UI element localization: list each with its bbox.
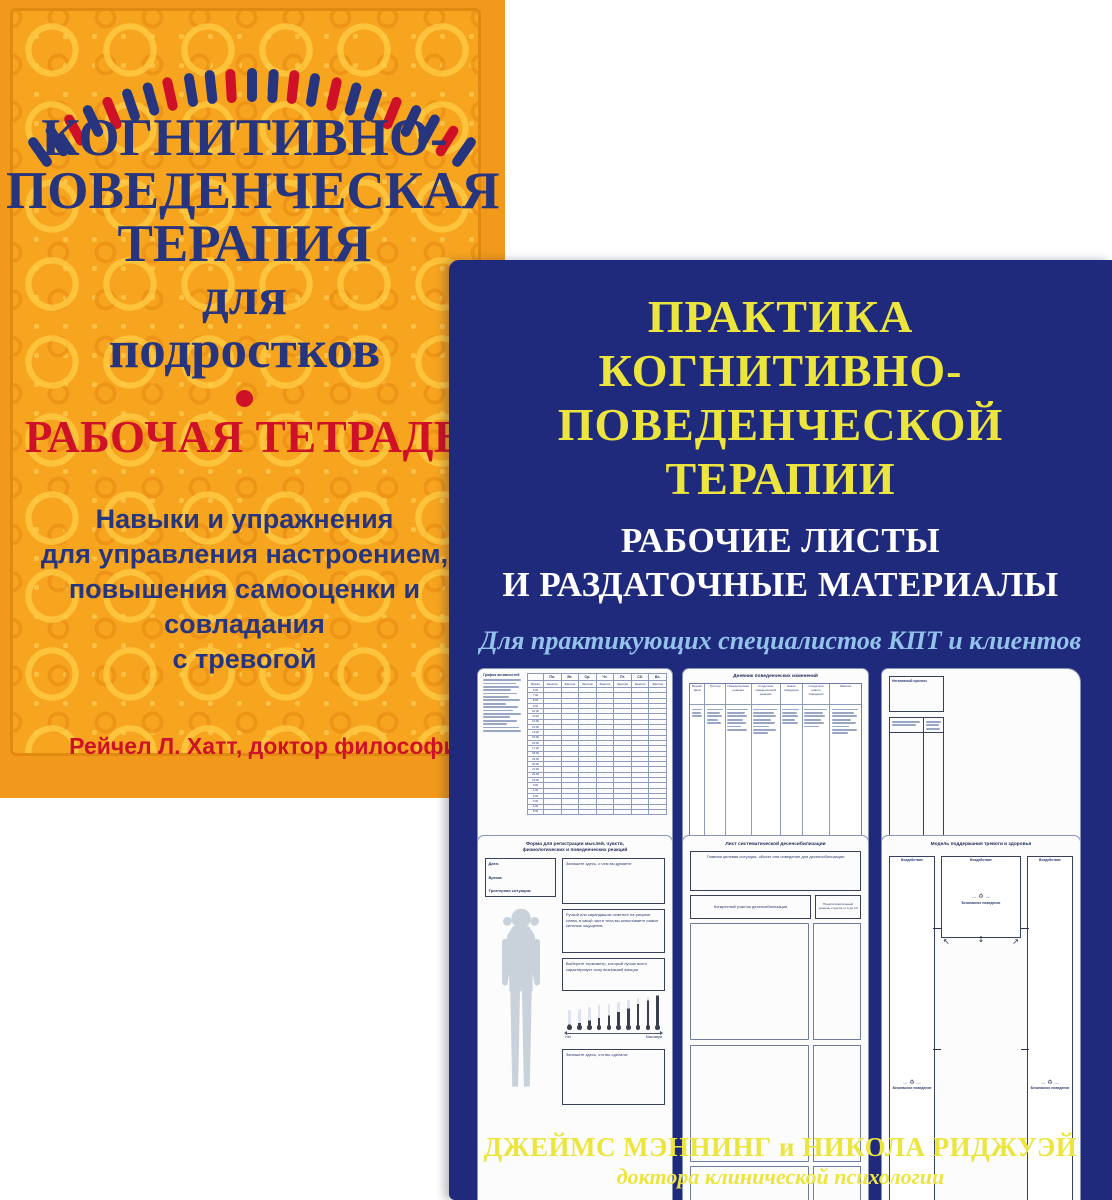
day-header: Вс. xyxy=(649,674,667,681)
text-placeholder-line xyxy=(483,727,519,729)
text-placeholder-line xyxy=(727,722,746,724)
field-label: Триггерная ситуация: xyxy=(489,888,553,893)
thermometer-bulb xyxy=(577,1025,582,1030)
stress-column-header: Предположительный уровень стресса от 0 д… xyxy=(815,895,861,919)
text-placeholder-line xyxy=(782,715,798,717)
text-placeholder-line xyxy=(753,726,769,728)
entry-subheader: Занятие xyxy=(649,681,667,688)
title-line: ПОВЕДЕНЧЕСКАЯ xyxy=(6,165,483,218)
thermometer-tube xyxy=(598,1005,601,1026)
schedule-cell: · xyxy=(614,809,632,814)
thermometer-icon xyxy=(636,998,641,1029)
title-line: ТЕРАПИИ xyxy=(449,452,1112,506)
diary-entry xyxy=(690,705,704,721)
subtitle-line: Навыки и упражнения xyxy=(6,502,483,537)
orange-cover-text: КОГНИТИВНО- ПОВЕДЕНЧЕСКАЯ ТЕРАПИЯ для по… xyxy=(6,0,483,760)
thoughts-box: Запишите здесь, о чем вы думаете: xyxy=(562,858,665,904)
box-label: Воздействие xyxy=(1028,857,1072,864)
diary-entry xyxy=(803,705,829,731)
entry-subheader: Занятие xyxy=(614,681,632,688)
arrow-up-left-icon: ↖ xyxy=(943,938,950,946)
text-placeholder-line xyxy=(782,722,798,724)
body-sensations-box: Ручкой или карандашом отметьте на рисунк… xyxy=(562,909,665,953)
text-placeholder-line xyxy=(926,728,940,730)
activity-notes xyxy=(483,679,523,732)
box-label: Безопасное поведение xyxy=(1028,1086,1072,1093)
thermometer-icon xyxy=(597,1005,602,1030)
text-placeholder-line xyxy=(832,709,858,711)
text-placeholder-line xyxy=(707,709,723,711)
thermometer-bulb xyxy=(616,1025,621,1030)
thought-record-left: Дата: Время: Триггерная ситуация: xyxy=(485,858,556,1105)
box-label: Безопасное поведение xyxy=(890,1086,934,1093)
day-header: Чт. xyxy=(596,674,614,681)
text-placeholder-line xyxy=(727,729,747,731)
diary-column-header: Триггер xyxy=(705,684,725,705)
text-placeholder-line xyxy=(892,724,917,726)
text-placeholder-line xyxy=(727,712,745,714)
text-placeholder-line xyxy=(832,712,855,714)
subtitle-line: И РАЗДАТОЧНЫЕ МАТЕРИАЛЫ xyxy=(449,563,1112,607)
scale-min-label: Нет xyxy=(565,1035,571,1039)
subtitle-line: РАБОЧИЕ ЛИСТЫ xyxy=(449,519,1112,563)
thermometer-icon xyxy=(655,995,660,1030)
desensitization-row xyxy=(690,923,861,1040)
text-placeholder-line xyxy=(483,713,521,715)
model-box: Воздействие ♻ Безопасное поведение xyxy=(941,856,1021,938)
prediction-col1-header xyxy=(890,718,924,733)
time-cell: 5:00 xyxy=(528,809,544,814)
connector-line xyxy=(1021,928,1029,929)
book-subtitle: Навыки и упражнения для управления настр… xyxy=(6,502,483,677)
text-placeholder-line xyxy=(483,730,521,732)
text-placeholder-line xyxy=(483,716,510,718)
title-line: для xyxy=(6,271,483,324)
activity-heading: График активностей xyxy=(483,673,523,677)
schedule-cell: · xyxy=(561,809,579,814)
thermometer-tube xyxy=(617,1002,620,1027)
thermometer-instruction-box: Выберите термометр, который лучше всего … xyxy=(562,958,665,991)
book-title: ПРАКТИКА КОГНИТИВНО- ПОВЕДЕНЧЕСКОЙ ТЕРАП… xyxy=(449,290,1112,506)
diary-entry xyxy=(705,705,725,728)
text-placeholder-line xyxy=(926,724,939,726)
text-placeholder-line xyxy=(804,726,819,728)
day-header: Сб. xyxy=(631,674,649,681)
thermometer-scale: Нет Максимум xyxy=(562,996,665,1044)
diary-column-header: Следствия нового поведения xyxy=(803,684,829,705)
text-placeholder-line xyxy=(832,732,848,734)
title-line: ТЕРАПИЯ xyxy=(6,218,483,271)
schedule-cell: · xyxy=(579,809,597,814)
diary-entry xyxy=(830,705,861,738)
text-placeholder-line xyxy=(483,706,518,708)
thermometer-tube xyxy=(608,1004,611,1027)
step-column-header: Конкретный участок десенсибилизации xyxy=(690,895,811,919)
text-placeholder-line xyxy=(483,683,516,685)
thermometer-tube xyxy=(647,997,650,1027)
thermometer-bulb xyxy=(597,1025,602,1030)
thermometer-icon xyxy=(577,1009,582,1030)
text-placeholder-line xyxy=(753,719,771,721)
box-label: Воздействие xyxy=(942,857,1020,864)
thermometer-bulb xyxy=(636,1025,641,1030)
text-placeholder-line xyxy=(483,723,507,725)
text-placeholder-line xyxy=(692,715,702,717)
schedule-cell: · xyxy=(631,809,649,814)
text-placeholder-line xyxy=(804,719,820,721)
blue-cover-text: ПРАКТИКА КОГНИТИВНО- ПОВЕДЕНЧЕСКОЙ ТЕРАП… xyxy=(449,260,1112,656)
thermometer-bulb xyxy=(587,1025,592,1030)
title-line: подростков xyxy=(6,324,483,377)
text-placeholder-line xyxy=(707,715,722,717)
text-placeholder-line xyxy=(483,710,513,712)
title-line: ПРАКТИКА xyxy=(449,290,1112,344)
text-placeholder-line xyxy=(727,709,748,711)
connector-line xyxy=(933,1049,941,1050)
book-title: КОГНИТИВНО- ПОВЕДЕНЧЕСКАЯ ТЕРАПИЯ для по… xyxy=(6,112,483,377)
audience-tagline: Для практикующих специалистов КПТ и клие… xyxy=(449,626,1112,656)
book-subtitle: РАБОЧИЕ ЛИСТЫ И РАЗДАТОЧНЫЕ МАТЕРИАЛЫ xyxy=(449,519,1112,607)
arrow-up-right-icon: ↗ xyxy=(1012,938,1019,946)
thermometer-bulb xyxy=(626,1025,631,1030)
day-header: Пн. xyxy=(544,674,562,681)
text-placeholder-line xyxy=(727,715,746,717)
text-placeholder-line xyxy=(707,712,721,714)
schedule-grid: Пн.Вт.Ср.Чт.Пт.Сб.Вс.ВремяЗанятиеЗанятие… xyxy=(527,673,667,815)
text-placeholder-line xyxy=(804,709,826,711)
text-placeholder-line xyxy=(832,722,856,724)
thermometer-icon xyxy=(567,1010,572,1030)
text-placeholder-line xyxy=(753,722,775,724)
text-placeholder-line xyxy=(692,712,701,714)
entry-subheader: Занятие xyxy=(544,681,562,688)
diary-column-header: Новое поведение xyxy=(781,684,802,705)
title-line: ПОВЕДЕНЧЕСКОЙ xyxy=(449,398,1112,452)
entry-subheader: Занятие xyxy=(596,681,614,688)
text-placeholder-line xyxy=(832,715,857,717)
thermometer-icon xyxy=(587,1007,592,1030)
text-placeholder-line xyxy=(483,703,506,705)
field-label: Время: xyxy=(489,875,553,880)
thermometer-icon xyxy=(607,1004,612,1030)
text-placeholder-line xyxy=(483,686,519,688)
target-situation-box: Главная целевая ситуация, объект или пов… xyxy=(690,851,861,891)
thermometer-bulb xyxy=(567,1025,572,1030)
series-label: РАБОЧАЯ ТЕТРАДЬ xyxy=(6,414,483,460)
text-placeholder-line xyxy=(926,721,941,723)
authors-degree: доктора клинической психологии xyxy=(449,1164,1112,1190)
entry-subheader: Занятие xyxy=(631,681,649,688)
title-line: физиологических и поведенческих реакций xyxy=(485,848,665,854)
diary-column-header: Заметки xyxy=(830,684,861,705)
diary-entry xyxy=(726,705,751,734)
thought-record-title: Форма для регистрации мыслей, чувств, фи… xyxy=(485,842,665,854)
two-book-covers: КОГНИТИВНО- ПОВЕДЕНЧЕСКАЯ ТЕРАПИЯ для по… xyxy=(0,0,1112,1200)
time-column-header: Время xyxy=(528,681,544,688)
prediction-col2-header xyxy=(924,718,943,733)
anxiety-model-title: Модель поддержания тревоги и здоровья xyxy=(888,842,1074,848)
text-placeholder-line xyxy=(483,693,517,695)
book-cover-teens-cbt-workbook: КОГНИТИВНО- ПОВЕДЕНЧЕСКАЯ ТЕРАПИЯ для по… xyxy=(0,0,505,798)
thermometer-tube xyxy=(588,1007,591,1026)
day-header: Пт. xyxy=(614,674,632,681)
schedule-cell: · xyxy=(649,809,667,814)
entry-subheader: Занятие xyxy=(561,681,579,688)
text-placeholder-line xyxy=(832,726,850,728)
context-fields-box: Дата: Время: Триггерная ситуация: xyxy=(485,858,556,897)
schedule-cell: · xyxy=(544,809,562,814)
desensitization-title: Лист систематической десенсибилизации xyxy=(690,842,861,848)
thermometer-bulb xyxy=(607,1025,612,1030)
text-placeholder-line xyxy=(832,719,851,721)
prediction-box-label: Негативный прогноз xyxy=(889,676,944,712)
thermometer-tube xyxy=(637,998,640,1026)
text-placeholder-line xyxy=(753,712,774,714)
text-placeholder-line xyxy=(707,722,721,724)
red-dot-ornament xyxy=(236,390,253,407)
text-placeholder-line xyxy=(753,729,776,731)
step-cell xyxy=(690,923,809,1040)
thermometers xyxy=(562,996,665,1030)
authors-line: ДЖЕЙМС МЭННИНГ и НИКОЛА РИДЖУЭЙ xyxy=(449,1132,1112,1163)
thermometer-tube xyxy=(568,1010,571,1026)
scale-max-label: Максимум xyxy=(646,1035,662,1039)
text-placeholder-line xyxy=(804,712,823,714)
text-placeholder-line xyxy=(727,719,742,721)
text-placeholder-line xyxy=(753,715,776,717)
thermometer-icon xyxy=(626,1000,631,1030)
stress-cell xyxy=(813,923,861,1040)
text-placeholder-line xyxy=(727,726,741,728)
field-label: Дата: xyxy=(489,861,553,866)
text-placeholder-line xyxy=(804,722,824,724)
connector-line xyxy=(1021,1049,1029,1050)
thermometer-bulb xyxy=(646,1025,651,1030)
thermometer-tube xyxy=(627,1000,630,1026)
diary-entry xyxy=(781,705,802,728)
scale-arrow-line xyxy=(566,1033,661,1034)
schedule-cell: · xyxy=(596,809,614,814)
box-label: Безопасное поведение xyxy=(942,900,1020,907)
day-header: Вт. xyxy=(561,674,579,681)
subtitle-line: с тревогой xyxy=(6,642,483,677)
arrow-up-icon: ↕ xyxy=(978,936,985,944)
diary-title: Дневник поведенческих изменений xyxy=(689,674,862,680)
text-placeholder-line xyxy=(753,732,768,734)
text-placeholder-line xyxy=(483,699,520,701)
title-line: КОГНИТИВНО- xyxy=(449,344,1112,398)
subtitle-line: повышения самооценки и совладания xyxy=(6,572,483,642)
diary-column-header: Время/ Дата xyxy=(690,684,704,705)
child-silhouette xyxy=(486,905,556,1101)
text-placeholder-line xyxy=(782,709,799,711)
thought-record-right: Запишите здесь, о чем вы думаете: Ручкой… xyxy=(562,858,665,1105)
box-label: Воздействие xyxy=(890,857,934,864)
title-line: КОГНИТИВНО- xyxy=(6,112,483,165)
text-placeholder-line xyxy=(804,715,825,717)
text-placeholder-line xyxy=(483,720,517,722)
text-placeholder-line xyxy=(782,712,797,714)
text-placeholder-line xyxy=(707,719,719,721)
thermometer-tube xyxy=(578,1009,581,1027)
actions-box: Запишите здесь, что вы сделали: xyxy=(562,1049,665,1105)
thermometer-icon xyxy=(616,1002,621,1030)
text-placeholder-line xyxy=(753,709,777,711)
connector-line xyxy=(933,928,941,929)
text-placeholder-line xyxy=(483,689,511,691)
author-line: Рейчел Л. Хатт, доктор философии xyxy=(6,733,483,760)
text-placeholder-line xyxy=(832,729,858,731)
thermometer-tube xyxy=(656,995,659,1026)
thermometer-bulb xyxy=(655,1025,660,1030)
text-placeholder-line xyxy=(483,679,521,681)
thermometer-icon xyxy=(646,997,651,1030)
day-header: Ср. xyxy=(579,674,597,681)
text-placeholder-line xyxy=(892,721,921,723)
text-placeholder-line xyxy=(782,719,795,721)
diary-column-header: Поведенческая реакция xyxy=(726,684,751,705)
book-cover-cbt-practice-worksheets: ПРАКТИКА КОГНИТИВНО- ПОВЕДЕНЧЕСКОЙ ТЕРАП… xyxy=(449,260,1112,1200)
text-placeholder-line xyxy=(692,709,703,711)
entry-subheader: Занятие xyxy=(579,681,597,688)
diary-entry xyxy=(752,705,780,738)
text-placeholder-line xyxy=(483,696,509,698)
subtitle-line: для управления настроением, xyxy=(6,537,483,572)
diary-column-header: Следствия поведенческой реакции xyxy=(752,684,780,705)
